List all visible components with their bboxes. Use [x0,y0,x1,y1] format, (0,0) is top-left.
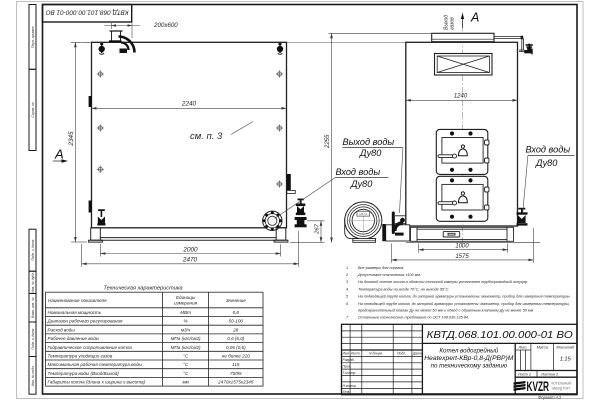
svg-text:70/95: 70/95 [230,371,242,376]
svg-text:мм: мм [182,380,189,385]
svg-text:Разраб.: Разраб. [343,358,355,362]
svg-text:Остальные технические требован: Остальные технические требования по ОСТ … [358,315,469,319]
svg-text:Допустимые отклонения ±100 мм: Допустимые отклонения ±100 мм. [357,273,421,277]
svg-text:Подп. и дата: Подп. и дата [31,239,35,260]
svg-text:2345: 2345 [68,131,75,147]
svg-text:4: 4 [346,287,348,291]
svg-text:На подводящей трубе котла, до: На подводящей трубе котла, до запорной а… [358,295,570,299]
svg-text:Справ. №: Справ. № [31,102,35,118]
svg-text:Т.контр.: Т.контр. [343,371,357,375]
svg-text:Утв.: Утв. [343,390,351,394]
svg-text:Heatexpert-КВр-0,8-Д(РВР)М: Heatexpert-КВр-0,8-Д(РВР)М [424,355,514,362]
svg-text:1: 1 [346,266,348,270]
svg-text:КВТД.068.101.00.000-01 ВО: КВТД.068.101.00.000-01 ВО [45,9,129,16]
svg-text:1:15: 1:15 [560,357,572,363]
svg-text:Выход воды: Выход воды [343,137,395,147]
svg-text:Рабочее давление воды: Рабочее давление воды [48,336,100,341]
svg-text:Лист 1: Лист 1 [517,373,531,377]
svg-text:Ду80: Ду80 [350,179,373,189]
svg-text:Вход воды: Вход воды [526,145,571,155]
svg-text:Формат А3: Формат А3 [538,395,562,400]
svg-text:Вход воды: Вход воды [336,167,381,177]
svg-text:Листов 2: Листов 2 [540,373,559,377]
svg-text:НБ-12: НБ-12 [359,212,367,216]
svg-text:КВТД.068.101.00.000-01 ВО: КВТД.068.101.00.000-01 ВО [427,330,573,341]
svg-text:не более 220: не более 220 [222,354,250,359]
svg-text:Н.контр.: Н.контр. [343,384,357,388]
svg-text:На отводящей трубе котла, до з: На отводящей трубе котла, до запорной ар… [358,302,570,306]
svg-text:Техническая характеристика: Техническая характеристика [103,286,182,292]
svg-text:2470: 2470 [182,257,198,264]
svg-text:50-100: 50-100 [229,319,244,324]
svg-text:N докум.: N докум. [369,352,383,356]
svg-text:2000: 2000 [182,246,198,253]
svg-text:Перв. примен.: Перв. примен. [31,26,35,49]
svg-text:0,8: 0,8 [233,310,240,315]
svg-text:Все размеры для справок: Все размеры для справок [358,266,404,270]
svg-text:%: % [184,319,188,324]
svg-text:Пров.: Пров. [343,365,352,369]
svg-text:°С: °С [183,371,189,376]
svg-text:Инв. № подл.: Инв. № подл. [31,365,35,386]
svg-text:200х600: 200х600 [153,22,178,29]
svg-text:см. п. 3: см. п. 3 [190,131,223,142]
svg-text:1000: 1000 [455,244,469,250]
svg-text:предохранительный клапан Ду н: предохранительный клапан Ду не менее 50 … [358,308,534,312]
svg-text:Температура уходящих газов: Температура уходящих газов [48,354,113,359]
svg-text:Ду80: Ду80 [359,148,382,158]
svg-text:измерения: измерения [174,301,198,306]
svg-text:Температура воды (Вход/Выход): Температура воды (Вход/Выход) [48,371,120,376]
svg-text:115: 115 [232,362,240,367]
svg-text:МВт: МВт [180,310,191,315]
svg-text:Гидравлическое сопротивление к: Гидравлическое сопротивление котла [48,345,133,350]
svg-text:А: А [54,147,64,162]
svg-text:KVZR: KVZR [527,379,550,394]
svg-text:КОТЕЛЬНЫЙ: КОТЕЛЬНЫЙ [552,382,573,386]
svg-text:Габариты котла (длина х ширина: Габариты котла (длина х ширина х высота) [48,380,146,385]
svg-text:2240: 2240 [181,101,197,108]
svg-text:Номинальная мощность: Номинальная мощность [48,310,102,315]
svg-text:28: 28 [232,327,239,332]
svg-text:2470х1575х2345: 2470х1575х2345 [217,380,254,385]
svg-text:1240: 1240 [454,94,468,100]
svg-text:Масштаб: Масштаб [556,345,575,349]
svg-text:°С: °С [183,354,189,359]
svg-text:На боковой стенке котла в обла: На боковой стенке котла в области топочн… [358,280,527,284]
svg-text:0,06 (0,6): 0,06 (0,6) [226,345,246,350]
svg-text:Диапазон рабочего регулировани: Диапазон рабочего регулирования [47,319,124,324]
svg-text:МПа (кгс/см2): МПа (кгс/см2) [171,336,201,341]
svg-text:Взам. инв. №: Взам. инв. № [31,297,35,318]
svg-text:2255: 2255 [325,134,331,149]
svg-text:Подп. и дата: Подп. и дата [31,328,35,349]
svg-text:Котел водогрейный: Котел водогрейный [439,347,498,354]
svg-text:ЗАВОД РЭП: ЗАВОД РЭП [552,386,571,390]
svg-text:МПа (кгс/см2): МПа (кгс/см2) [171,345,201,350]
svg-text:Инв. № дубл.: Инв. № дубл. [31,272,35,293]
svg-text:1575: 1575 [455,254,469,260]
svg-text:Изм: Изм [343,352,350,356]
svg-text:Температура воды на входе 70°: Температура воды на входе 70°С, на выход… [358,287,449,291]
svg-text:Расход воды: Расход воды [48,327,76,332]
svg-text:Единицы: Единицы [176,295,196,300]
svg-text:267: 267 [315,223,321,234]
svg-text:Максимальная рабочая температу: Максимальная рабочая температура воды [48,362,143,367]
svg-text:А: А [470,11,479,25]
svg-text:Значение: Значение [226,298,247,303]
svg-text:Подп.: Подп. [397,352,406,356]
svg-text:Лист: Лист [350,352,360,356]
svg-text:Дата: Дата [412,352,422,356]
svg-text:Масса: Масса [537,345,548,349]
svg-text:по техническому заданию: по техническому заданию [431,362,508,369]
svg-text:Лит.: Лит. [518,345,528,349]
svg-text:°С: °С [183,362,189,367]
svg-text:0,6 (6,0): 0,6 (6,0) [227,336,245,341]
svg-text:Ду80: Ду80 [535,158,558,168]
svg-text:м3/ч: м3/ч [181,327,191,332]
svg-text:газов: газов [450,17,456,30]
svg-text:Наименование показателя: Наименование показателя [48,298,107,303]
